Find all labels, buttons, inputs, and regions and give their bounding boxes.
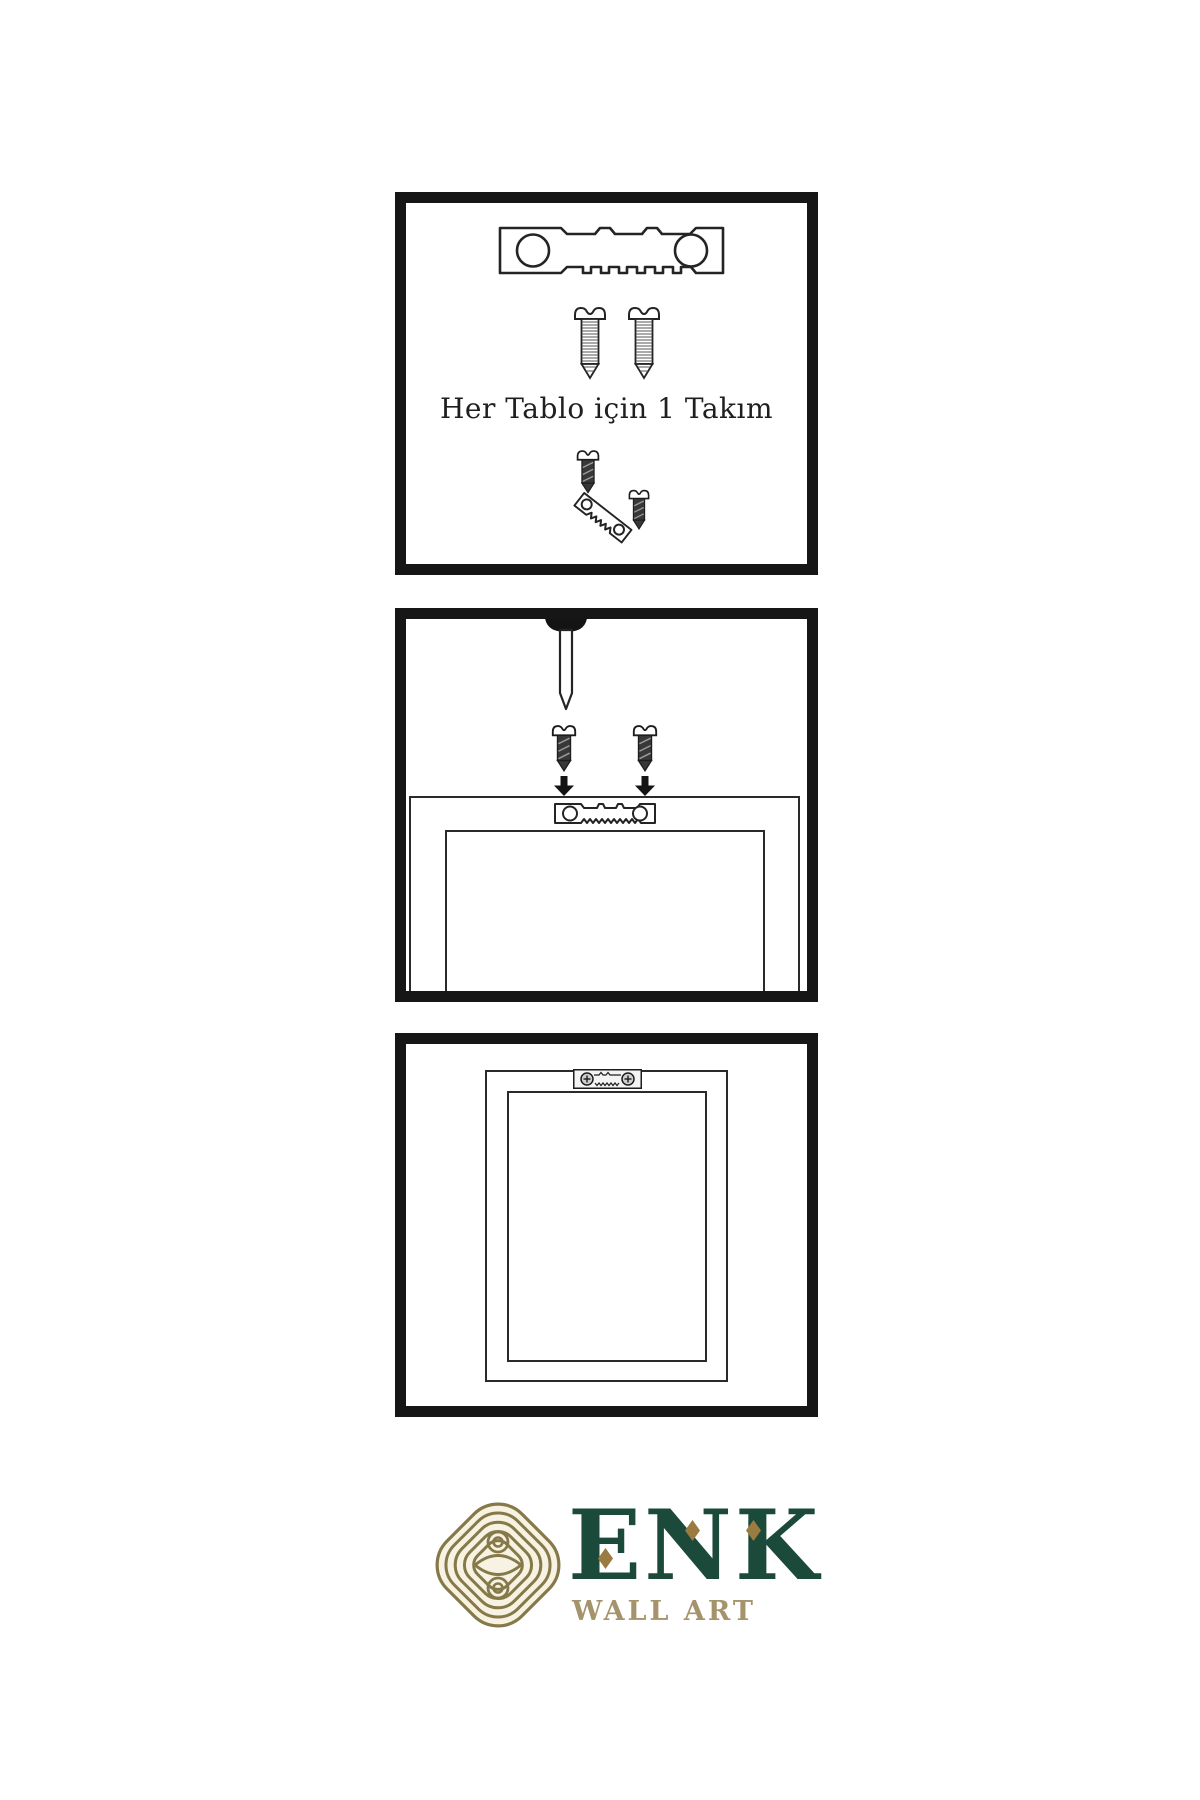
sawtooth-hanger-icon	[553, 802, 657, 825]
hung-frame-inner-outline	[507, 1091, 707, 1362]
sawtooth-hanger-icon	[495, 223, 728, 278]
down-arrow-icon	[554, 776, 574, 796]
knot-logo-icon	[435, 1502, 561, 1628]
panel-mount-step	[395, 608, 818, 1002]
screw-icon	[627, 305, 661, 381]
kit-caption: Her Tablo için 1 Takım	[406, 392, 807, 425]
screw-with-angled-hanger-icon	[575, 448, 659, 552]
screw-icon	[573, 305, 607, 381]
brand-tagline: WALL ART	[572, 1596, 756, 1627]
dark-screw-icon	[575, 448, 601, 494]
down-arrow-icon	[635, 776, 655, 796]
mounted-hanger-icon	[573, 1069, 642, 1089]
dark-screw-icon	[550, 723, 578, 772]
nail-icon	[543, 618, 589, 716]
frame-back-inner-outline	[445, 830, 765, 1002]
mini-sawtooth-hanger-icon	[573, 492, 633, 544]
panel-hardware-kit: Her Tablo için 1 Takım	[395, 192, 818, 575]
brand-footer: ENK WALL ART	[430, 1490, 810, 1665]
dark-screw-icon	[627, 488, 651, 530]
brand-name: ENK	[568, 1496, 821, 1597]
instruction-sheet: Her Tablo için 1 Takım	[0, 0, 1200, 1800]
dark-screw-icon	[631, 723, 659, 772]
panel-hang-step	[395, 1033, 818, 1417]
